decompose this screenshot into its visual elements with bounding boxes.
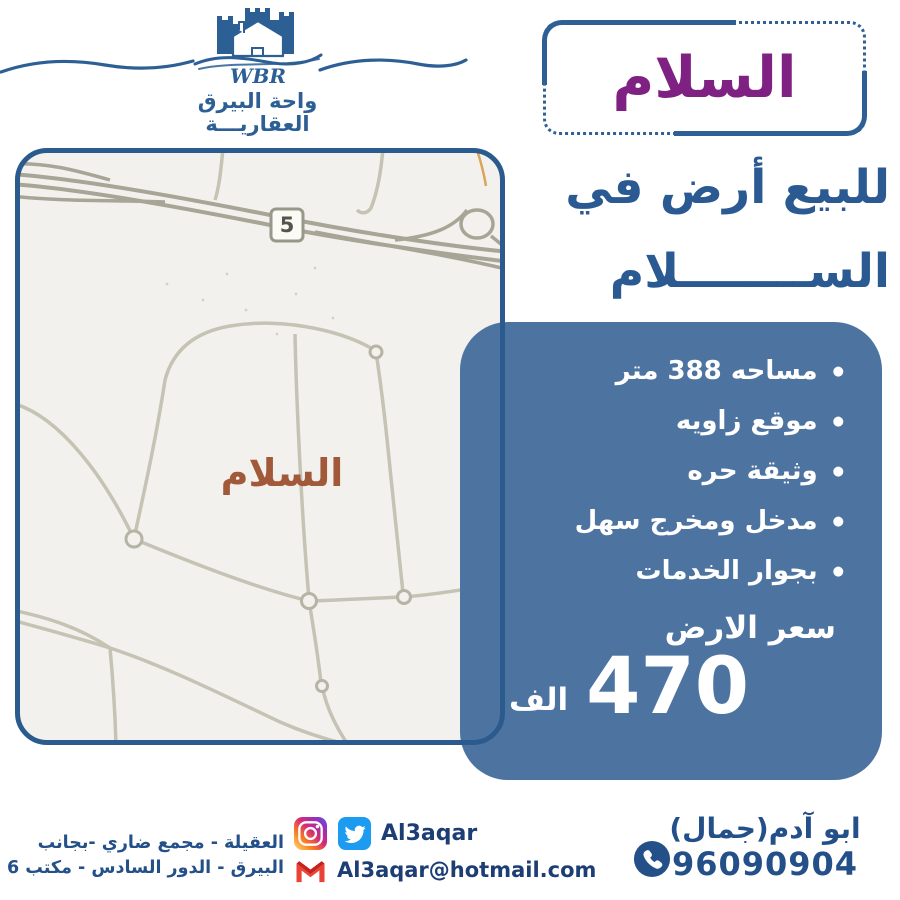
feature-item: ●بجوار الخدمات bbox=[460, 546, 882, 596]
map-district-label: السلام bbox=[221, 451, 344, 496]
feature-item: ●وثيقة حره bbox=[460, 446, 882, 496]
instagram-icon[interactable] bbox=[293, 816, 328, 851]
feature-text: موقع زاويه bbox=[676, 406, 818, 436]
headline-line1: للبيع أرض في bbox=[490, 146, 890, 230]
bullet-icon: ● bbox=[833, 414, 844, 429]
social-links: Al3aqar Al3aqar@hotmail.com bbox=[293, 816, 596, 884]
left-wave-decoration bbox=[0, 50, 195, 78]
feature-text: مدخل ومخرج سهل bbox=[575, 506, 818, 536]
bullet-icon: ● bbox=[833, 464, 844, 479]
feature-item: ●مدخل ومخرج سهل bbox=[460, 496, 882, 546]
company-logo: WBR واحة البيرق العقاريـــة bbox=[185, 2, 330, 136]
castle-logo-icon: WBR bbox=[193, 2, 323, 86]
bullet-icon: ● bbox=[833, 364, 844, 379]
route-5-shield: 5 bbox=[271, 209, 303, 241]
price-unit: الف bbox=[509, 682, 568, 718]
title-badge: السلام bbox=[542, 20, 867, 136]
feature-list: ●مساحه 388 متر ●موقع زاويه ●وثيقة حره ●م… bbox=[460, 346, 882, 596]
brand-name-line1: واحة البيرق bbox=[185, 90, 330, 113]
details-panel: ●مساحه 388 متر ●موقع زاويه ●وثيقة حره ●م… bbox=[460, 322, 882, 780]
route-shield-number: 5 bbox=[280, 213, 295, 237]
bullet-icon: ● bbox=[833, 514, 844, 529]
address-line1: العقيلة - مجمع ضاري -بجانب bbox=[0, 831, 284, 856]
listing-headline: للبيع أرض في الســــــــلام bbox=[490, 146, 890, 314]
office-address: العقيلة - مجمع ضاري -بجانب البيرق - الدو… bbox=[0, 831, 284, 881]
social-row-handles: Al3aqar bbox=[293, 816, 596, 851]
social-handle[interactable]: Al3aqar bbox=[381, 821, 477, 846]
flyer-page: WBR واحة البيرق العقاريـــة السلام للبيع… bbox=[0, 0, 900, 900]
bullet-icon: ● bbox=[833, 564, 844, 579]
social-row-email: Al3aqar@hotmail.com bbox=[293, 856, 596, 884]
price-label: سعر الارض bbox=[460, 610, 882, 646]
feature-item: ●موقع زاويه bbox=[460, 396, 882, 446]
feature-text: بجوار الخدمات bbox=[636, 556, 818, 586]
brand-initials: WBR bbox=[230, 64, 286, 86]
contact-phone-block: ابو آدم(جمال) 96090904 bbox=[630, 812, 900, 882]
email-address[interactable]: Al3aqar@hotmail.com bbox=[337, 858, 596, 882]
district-title: السلام bbox=[542, 20, 867, 136]
phone-icon[interactable] bbox=[633, 840, 671, 878]
address-line2: البيرق - الدور السادس - مكتب 6 bbox=[0, 856, 284, 881]
headline-line2: الســــــــلام bbox=[490, 230, 890, 314]
feature-text: مساحه 388 متر bbox=[616, 356, 818, 386]
brand-name-line2: العقاريـــة bbox=[185, 113, 330, 136]
right-wave-decoration bbox=[318, 50, 468, 78]
gmail-icon[interactable] bbox=[293, 856, 328, 884]
price-amount: 470 bbox=[586, 650, 749, 724]
twitter-icon[interactable] bbox=[337, 816, 372, 851]
feature-item: ●مساحه 388 متر bbox=[460, 346, 882, 396]
price-row: الف 470 bbox=[418, 650, 840, 724]
feature-text: وثيقة حره bbox=[687, 456, 817, 486]
